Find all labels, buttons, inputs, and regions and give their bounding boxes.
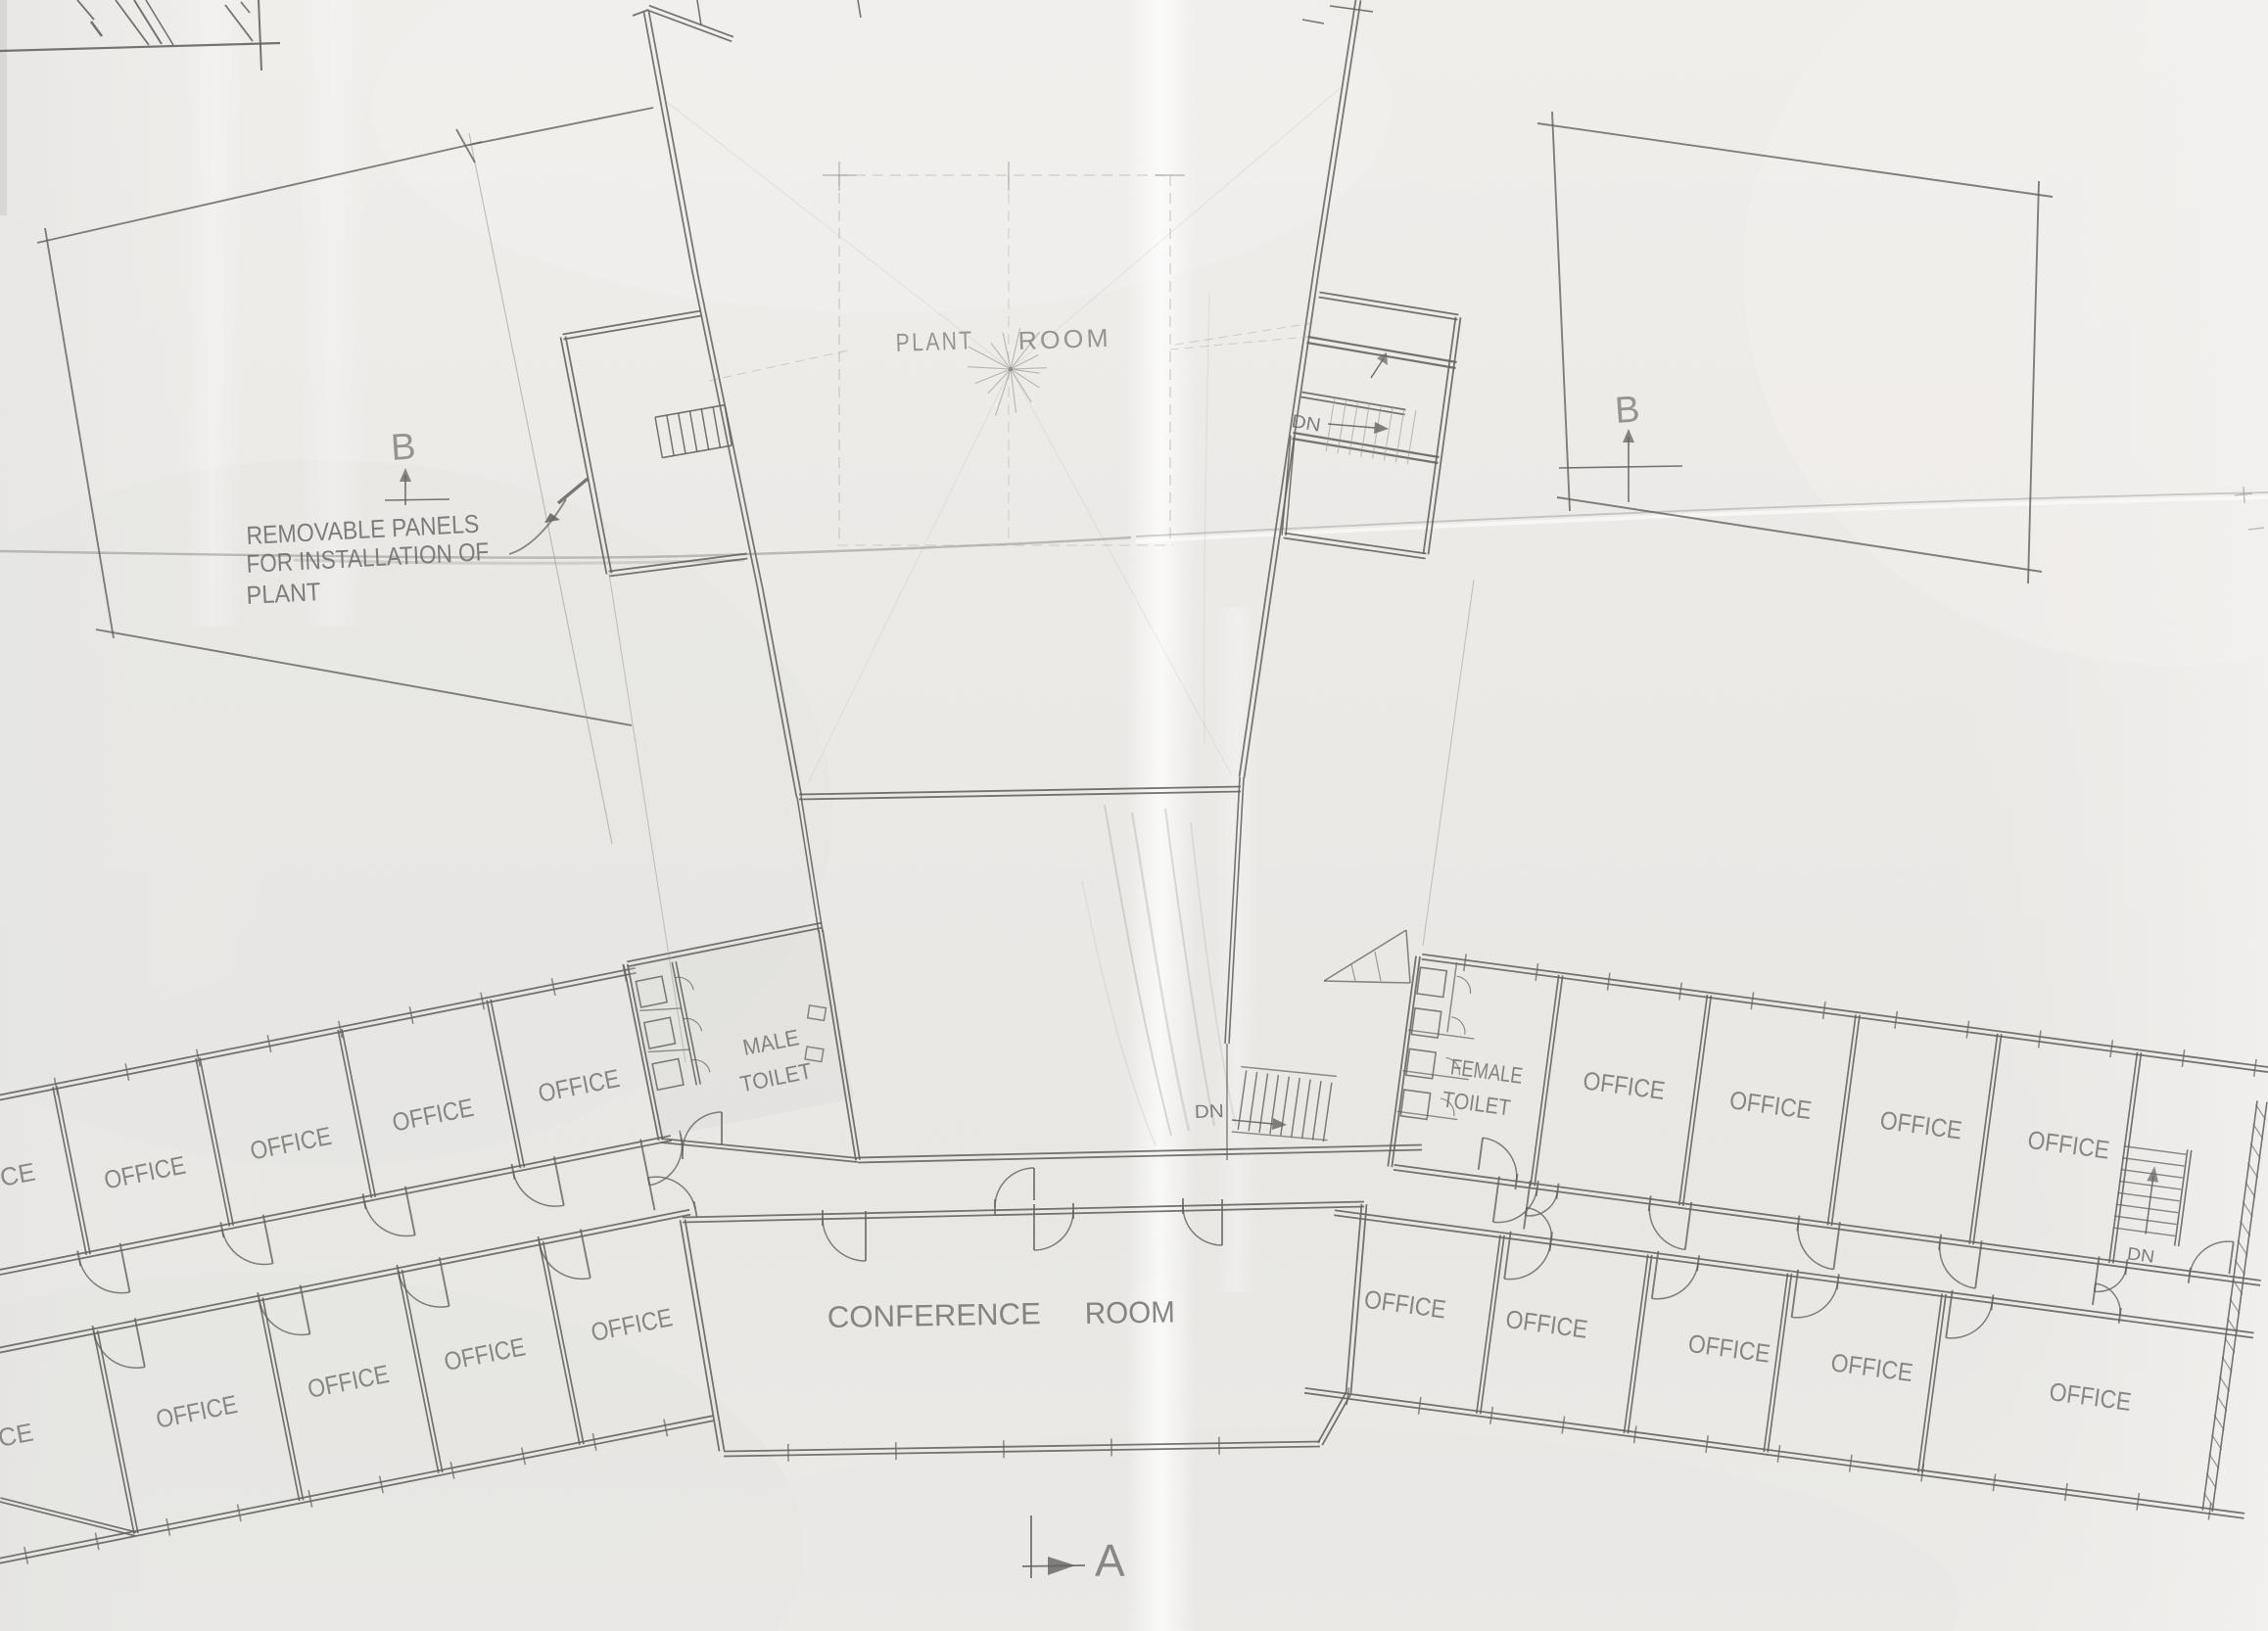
svg-text:CONFERENCE: CONFERENCE xyxy=(827,1296,1042,1334)
svg-text:PLANT: PLANT xyxy=(246,577,322,610)
svg-text:DN: DN xyxy=(2126,1243,2155,1267)
svg-text:B: B xyxy=(1614,389,1641,432)
svg-text:ROOM: ROOM xyxy=(1017,323,1111,355)
svg-text:DN: DN xyxy=(1194,1101,1224,1123)
svg-text:B: B xyxy=(390,426,417,469)
svg-text:PLANT: PLANT xyxy=(895,325,974,357)
svg-text:A: A xyxy=(1095,1535,1125,1586)
svg-text:ROOM: ROOM xyxy=(1085,1294,1176,1330)
